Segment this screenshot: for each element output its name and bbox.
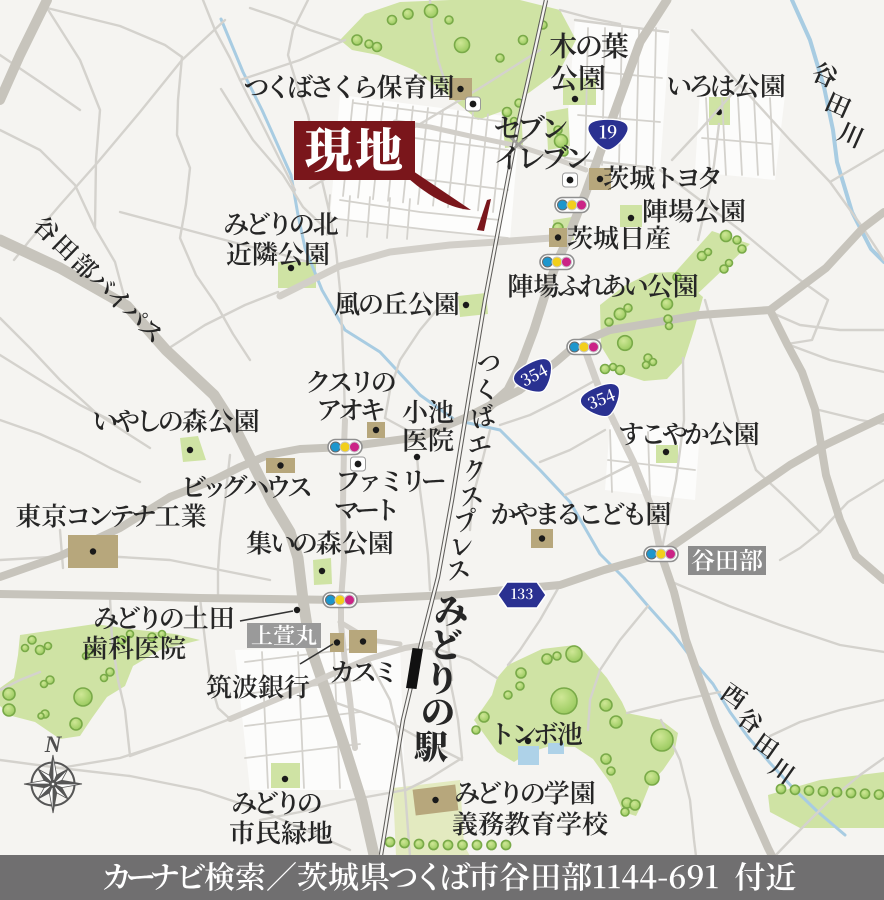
svg-text:N: N bbox=[44, 732, 63, 757]
